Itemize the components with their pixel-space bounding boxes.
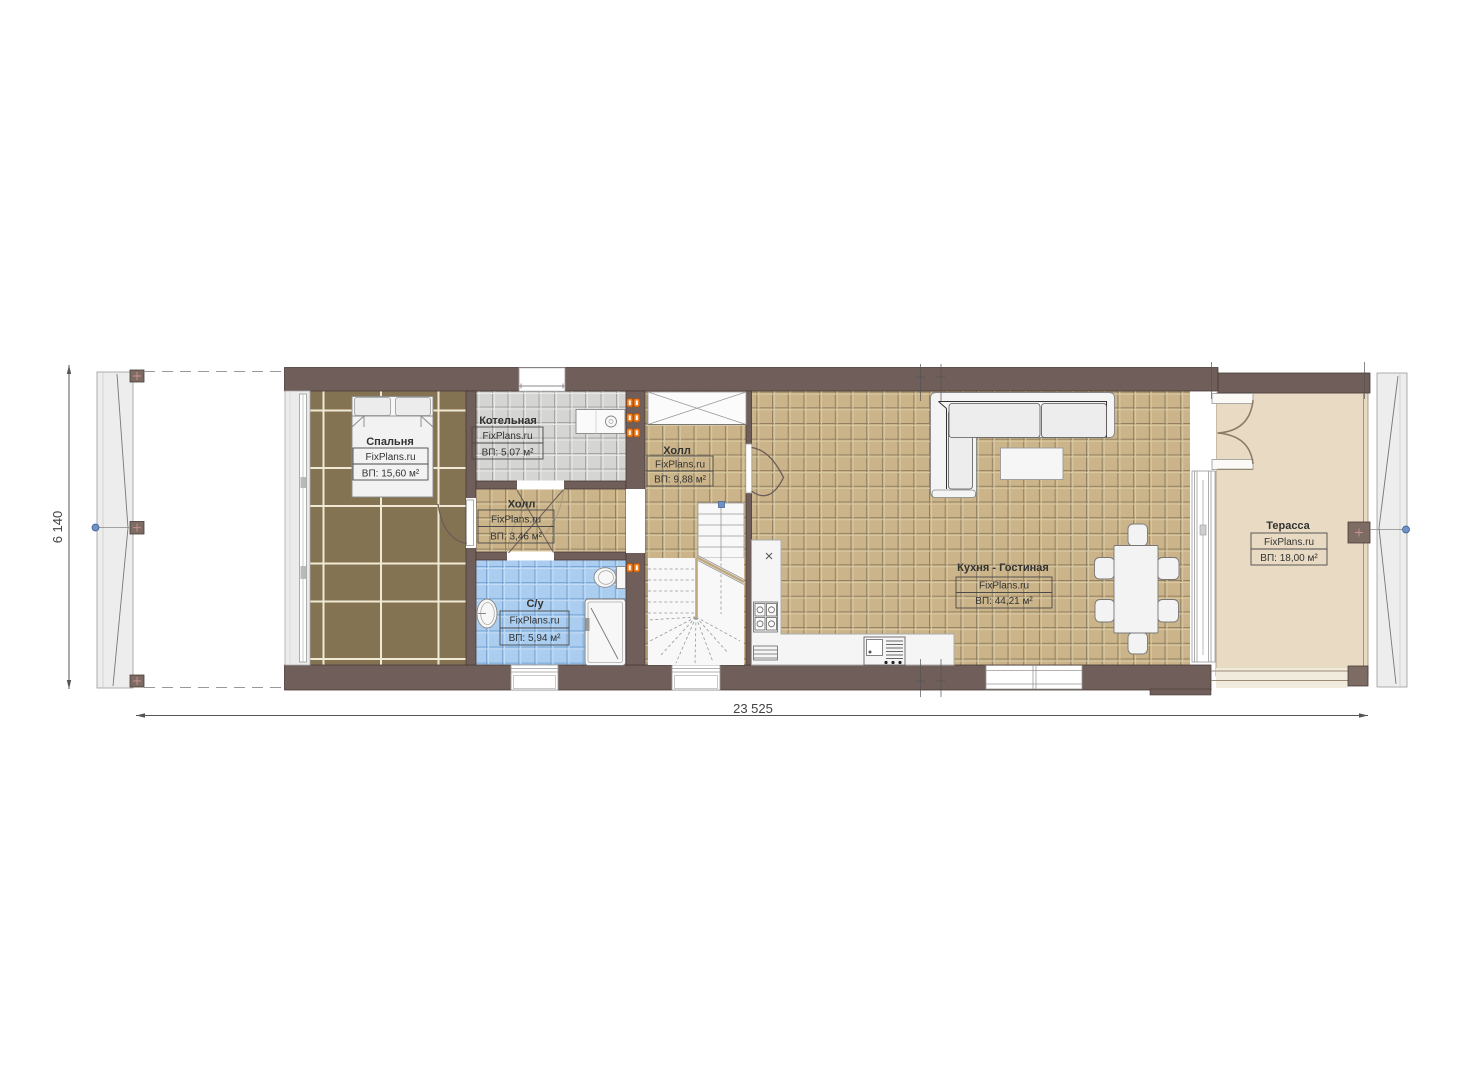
- svg-text:FixPlans.ru: FixPlans.ru: [655, 460, 705, 471]
- svg-text:ВП: 18,00 м²: ВП: 18,00 м²: [1260, 553, 1318, 564]
- svg-text:Котельная: Котельная: [479, 415, 537, 427]
- svg-text:Терасса: Терасса: [1266, 520, 1310, 532]
- svg-text:6 140: 6 140: [50, 511, 65, 544]
- svg-text:ВП: 9,88 м²: ВП: 9,88 м²: [654, 475, 707, 486]
- svg-text:ВП: 15,60 м²: ВП: 15,60 м²: [362, 469, 420, 480]
- svg-text:ВП: 5,07 м²: ВП: 5,07 м²: [482, 448, 535, 459]
- svg-text:С/у: С/у: [526, 598, 544, 610]
- svg-text:Спальня: Спальня: [366, 436, 414, 448]
- svg-text:FixPlans.ru: FixPlans.ru: [979, 581, 1029, 592]
- svg-text:FixPlans.ru: FixPlans.ru: [1264, 537, 1314, 548]
- svg-text:Кухня - Гостиная: Кухня - Гостиная: [957, 562, 1049, 574]
- svg-text:FixPlans.ru: FixPlans.ru: [365, 452, 415, 463]
- svg-text:ВП: 44,21 м²: ВП: 44,21 м²: [975, 596, 1033, 607]
- svg-text:ВП: 5,94 м²: ВП: 5,94 м²: [509, 633, 562, 644]
- svg-text:Холл: Холл: [508, 499, 536, 511]
- svg-text:ВП: 3,46 м²: ВП: 3,46 м²: [490, 532, 543, 543]
- svg-text:Холл: Холл: [663, 445, 691, 457]
- svg-text:FixPlans.ru: FixPlans.ru: [509, 616, 559, 627]
- svg-text:23 525: 23 525: [733, 701, 773, 716]
- svg-text:FixPlans.ru: FixPlans.ru: [491, 515, 541, 526]
- svg-text:FixPlans.ru: FixPlans.ru: [482, 431, 532, 442]
